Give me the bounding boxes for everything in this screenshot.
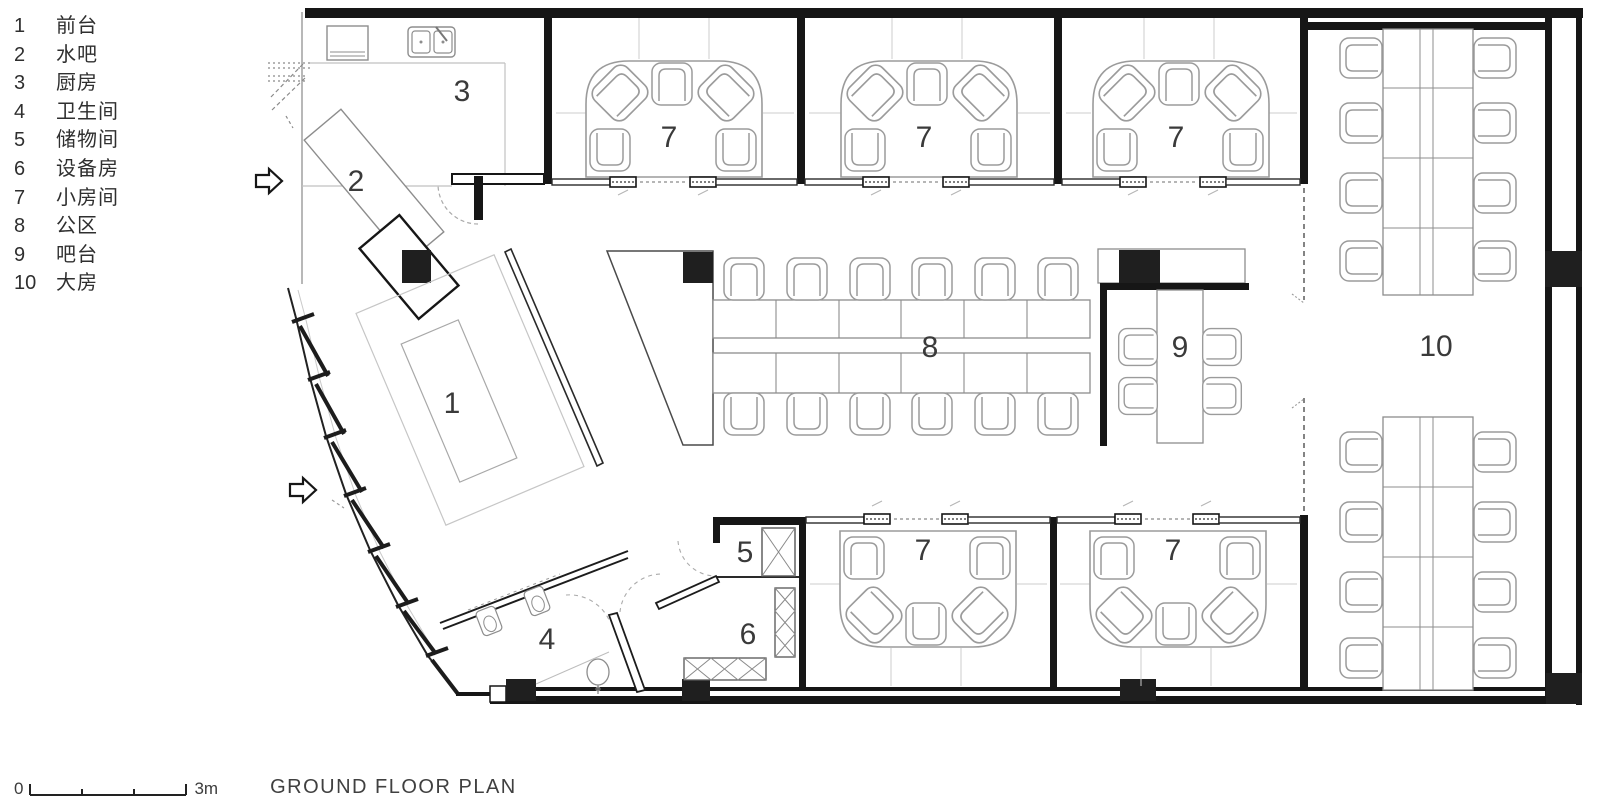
room-label-small-room: 7 [661, 121, 678, 154]
footer: 0 3m GROUND FLOOR PLAN [14, 776, 517, 799]
room-label-reception: 1 [444, 387, 461, 420]
entrance-arrow-icon [256, 169, 282, 193]
bathroom: 4 [440, 551, 662, 694]
small-room-top-2: 7 [805, 18, 1054, 195]
fridge-counter [327, 26, 368, 60]
bar-counter: 9 [1098, 249, 1249, 446]
entrance-arrow-icon [290, 478, 316, 502]
storage-room: 5 [678, 517, 799, 577]
entry-door-marks [268, 63, 312, 128]
scale-bar [27, 781, 189, 799]
room-label-water-bar: 2 [348, 165, 365, 198]
sink-icon [408, 27, 455, 57]
room-label-small-room: 7 [915, 534, 932, 567]
room-label-small-room: 7 [1168, 121, 1185, 154]
room-label-storage: 5 [737, 536, 754, 569]
room-label-big-room: 10 [1419, 330, 1452, 363]
small-room-top-3: 7 [1062, 18, 1300, 195]
small-room-bottom-1: 7 [806, 501, 1050, 686]
equipment-room: 6 [656, 576, 795, 680]
floor-plan-drawing: 3 2 1 [0, 0, 1600, 808]
room-label-small-room: 7 [916, 121, 933, 154]
big-room: 10 [1292, 22, 1545, 690]
room-label-equipment: 6 [740, 618, 757, 651]
urinal-icon [475, 605, 503, 636]
reception: 1 [356, 215, 603, 525]
room-label-public-area: 8 [922, 331, 939, 364]
floor-plan-sheet: 1前台 2水吧 3厨房 4卫生间 5储物间 6设备房 7小房间 8公区 9吧台 … [0, 0, 1600, 808]
scale-start-label: 0 [14, 779, 23, 799]
room-label-kitchen: 3 [454, 75, 471, 108]
room-label-small-room: 7 [1165, 534, 1182, 567]
room-label-bar-counter: 9 [1172, 331, 1189, 364]
room-label-bathroom: 4 [539, 623, 556, 656]
plan-title: GROUND FLOOR PLAN [270, 776, 517, 799]
small-room-top-1: 7 [552, 18, 797, 195]
scale-end-label: 3m [194, 779, 218, 799]
small-room-bottom-2: 7 [1057, 501, 1300, 686]
public-area: 8 [607, 251, 1090, 445]
